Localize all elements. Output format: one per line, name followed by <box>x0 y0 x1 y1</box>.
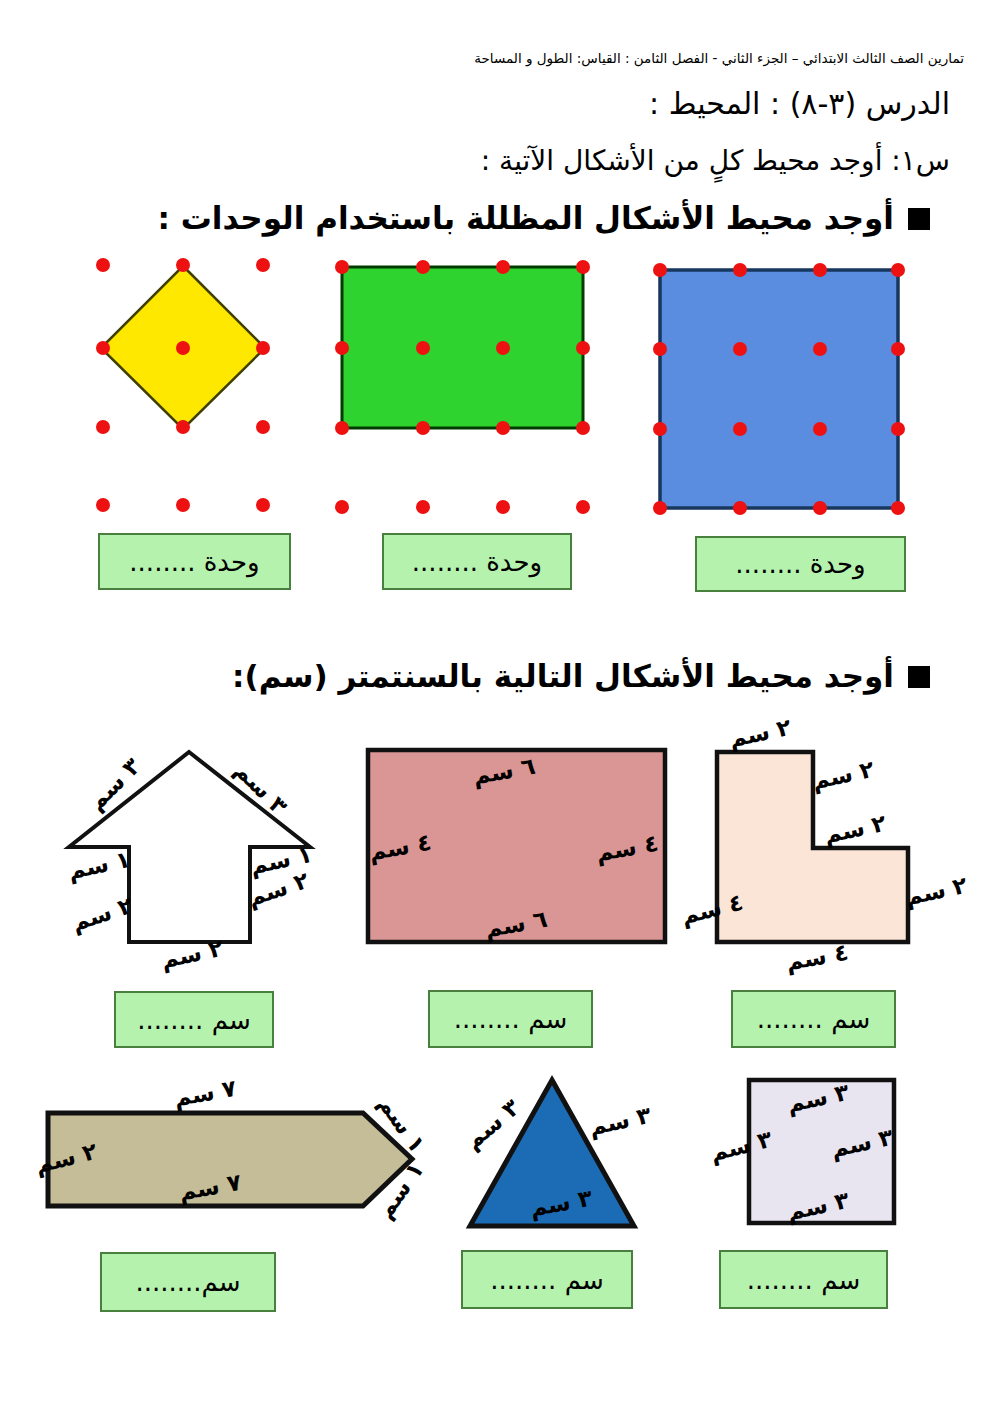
green-rectangle-shape <box>342 267 583 428</box>
answer-box-square-units[interactable]: ........ وحدة <box>695 536 906 592</box>
answer-box-arrow-cm[interactable]: ........ سم <box>114 991 274 1048</box>
answer-box-rectangle-cm-text: ........ سم <box>454 1004 567 1034</box>
black-square-bullet-icon <box>908 208 930 230</box>
answer-box-rectangle-cm[interactable]: ........ سم <box>428 990 593 1048</box>
section-cm-heading-text: أوجد محيط الأشكال التالية بالسنتمتر (سم)… <box>232 658 894 694</box>
answer-box-pencil-cm[interactable]: ........سم <box>100 1252 276 1312</box>
section-units-heading: أوجد محيط الأشكال المظللة باستخدام الوحد… <box>157 200 930 236</box>
answer-box-square-cm-text: ........ سم <box>747 1265 860 1295</box>
course-header: تمارين الصف الثالث الابتدائي – الجزء الث… <box>474 50 964 66</box>
answer-box-pencil-cm-text: ........سم <box>135 1267 240 1297</box>
answer-box-lshape-cm-text: ........ سم <box>757 1004 870 1034</box>
blue-square-shape <box>660 270 898 508</box>
answer-box-diamond-units[interactable]: ........ وحدة <box>98 533 291 590</box>
worksheet-page: تمارين الصف الثالث الابتدائي – الجزء الث… <box>0 0 1000 1413</box>
answer-box-diamond-units-text: ........ وحدة <box>129 547 259 577</box>
answer-box-square-cm[interactable]: ........ سم <box>719 1250 888 1309</box>
answer-box-triangle-cm-text: ........ سم <box>490 1265 603 1295</box>
answer-box-arrow-cm-text: ........ سم <box>137 1005 250 1035</box>
section-units-heading-text: أوجد محيط الأشكال المظللة باستخدام الوحد… <box>157 200 894 236</box>
question-1: س١: أوجد محيط كلٍ من الأشكال الآتية : <box>481 144 950 177</box>
lesson-title: الدرس (٣-٨) : المحيط : <box>649 86 950 121</box>
answer-box-triangle-cm[interactable]: ........ سم <box>461 1250 633 1309</box>
black-square-bullet-icon <box>908 666 930 688</box>
answer-box-lshape-cm[interactable]: ........ سم <box>731 990 896 1048</box>
section-cm-heading: أوجد محيط الأشكال التالية بالسنتمتر (سم)… <box>232 658 930 694</box>
answer-box-square-units-text: ........ وحدة <box>735 549 865 579</box>
answer-box-rectangle-units[interactable]: ........ وحدة <box>382 533 572 590</box>
answer-box-rectangle-units-text: ........ وحدة <box>412 547 542 577</box>
